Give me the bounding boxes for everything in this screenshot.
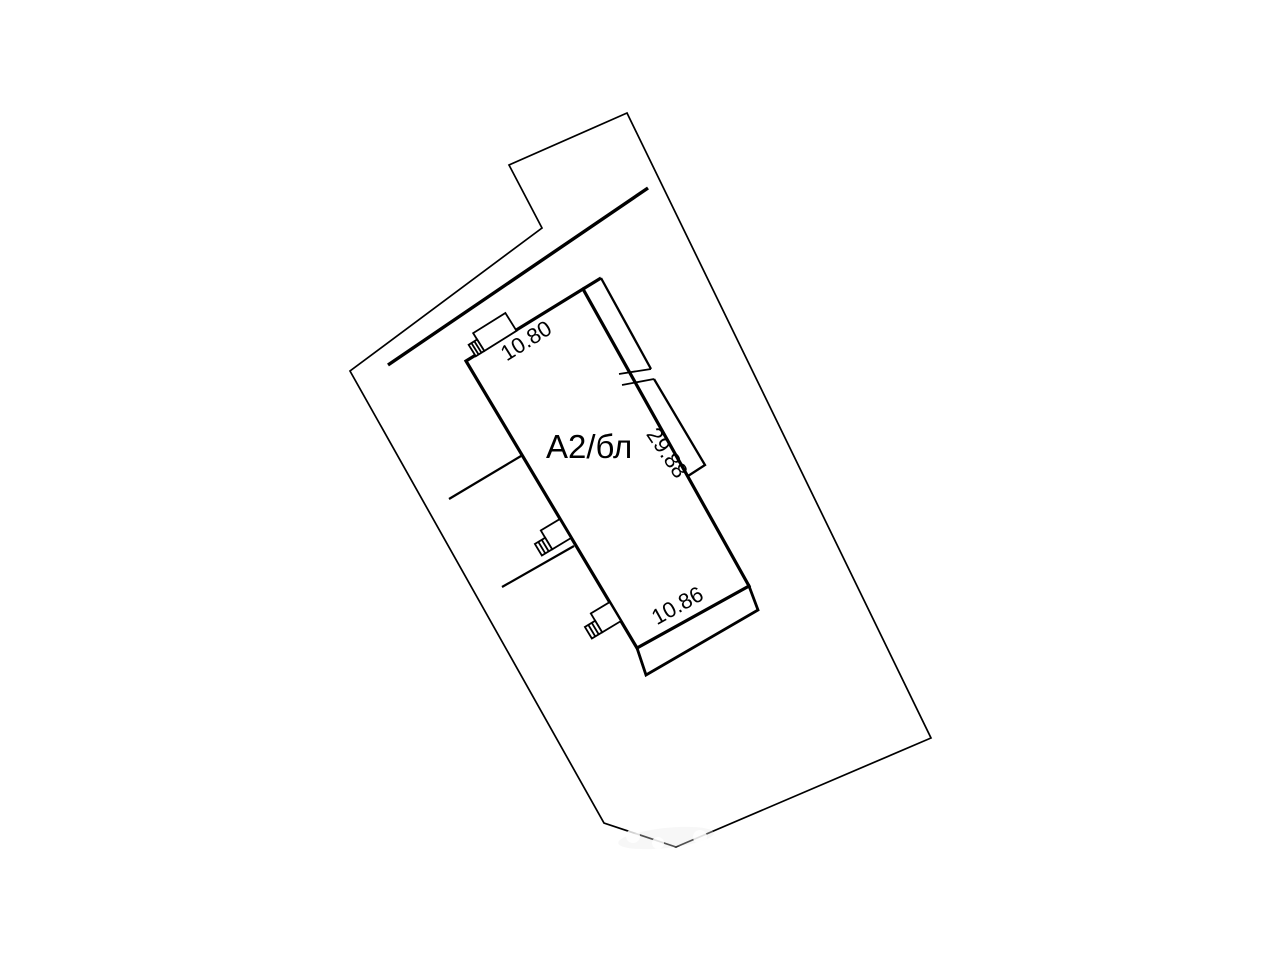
watermark-smudge [617,823,715,853]
fence-line-lower [502,546,574,587]
cadastral-site-plan: А2/бл 10.80 29.88 10.86 [0,0,1280,961]
fence-line-upper [449,456,521,499]
watermark-smudge-blob-1 [626,829,640,843]
site-plan-page: А2/бл 10.80 29.88 10.86 [0,0,1280,961]
watermark-smudge-blob-3 [693,830,707,844]
building-top-edge-extension [583,278,601,289]
building-label: А2/бл [546,428,632,465]
watermark-smudge-blob-2 [652,837,664,849]
